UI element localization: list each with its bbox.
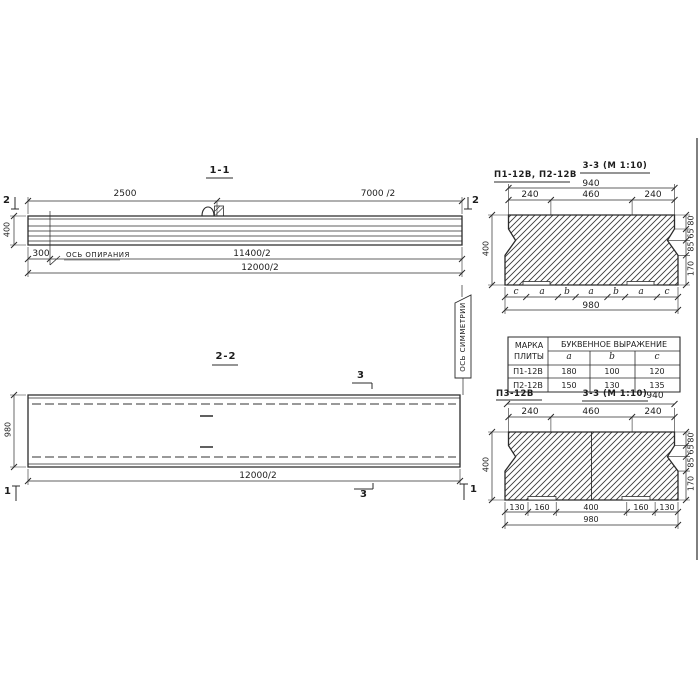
xsec-bot-dim-130b: 130 [652, 503, 682, 512]
letter-c1: c [508, 287, 524, 297]
cut-marker-3-bottom: 3 [360, 490, 368, 500]
section-1-1-title: 1-1 [203, 166, 237, 176]
xsec-top-dim-400: 400 [482, 234, 491, 264]
xsec-top-dim-240a: 240 [510, 190, 550, 200]
table-col-b: b [602, 352, 622, 362]
xsec-top-dim-460: 460 [571, 190, 611, 200]
dim-400-elevation: 400 [3, 215, 12, 245]
xsec-bot-dim-980: 980 [571, 515, 611, 524]
dim-980-plan: 980 [4, 415, 13, 445]
letter-b2: b [608, 287, 624, 297]
dim-7000-2: 7000 /2 [348, 189, 408, 199]
section-2-2-lines [10, 285, 471, 501]
xsec-top-title: 3-3 (М 1:10) [570, 161, 660, 171]
dim-11400-2: 11400/2 [222, 249, 282, 259]
table-header-group: БУКВЕННОЕ ВЫРАЖЕНИЕ [549, 340, 679, 349]
letter-b1: b [559, 287, 575, 297]
drawing-sheet: 1-1 2500 7000 /2 2 2 400 300 ОСЬ ОПИРАНИ… [0, 0, 700, 700]
table-col-c: c [647, 352, 667, 362]
table-col-a: a [559, 352, 579, 362]
xsec-top-mark-label: П1-12В, П2-12В [494, 170, 577, 180]
xsec-bot-mark-label: П3-12В [496, 389, 534, 399]
table-r1-a: 180 [549, 367, 589, 376]
xsec-bot-dim-240b: 240 [633, 407, 673, 417]
xsec-top-dim-980: 980 [571, 301, 611, 311]
cut-marker-3-top: 3 [357, 371, 365, 381]
xsec-bot-dim-940: 940 [640, 391, 670, 401]
dim-300: 300 [28, 249, 54, 259]
letter-a1: a [534, 287, 550, 297]
xsec-bot-dim-240a: 240 [510, 407, 550, 417]
letter-a2: a [583, 287, 599, 297]
section-2-2-title: 2-2 [209, 352, 243, 362]
xsec-top-dim-240b: 240 [633, 190, 673, 200]
xsec-bot-dim-400: 400 [482, 450, 491, 480]
dim-12000-2-plan: 12000/2 [228, 471, 288, 481]
letter-c2: c [659, 287, 675, 297]
table-r1-mark: П1-12В [508, 367, 548, 376]
cut-marker-2-left: 2 [3, 196, 11, 206]
dim-12000-2-elevation: 12000/2 [230, 263, 290, 273]
xsec-bot-dim-170: 170 [687, 469, 696, 499]
table-r1-b: 100 [592, 367, 632, 376]
xsec-bot-dim-460: 460 [571, 407, 611, 417]
symmetry-axis-label: ОСЬ СИММЕТРИИ [459, 294, 467, 380]
table-r1-c: 120 [637, 367, 677, 376]
table-header-mark: МАРКА ПЛИТЫ [511, 340, 547, 362]
xsec-top-dim-170: 170 [687, 254, 696, 284]
xsec-top-dim-940: 940 [571, 179, 611, 189]
letter-a3: a [633, 287, 649, 297]
xsec-bot-dim-160a: 160 [527, 503, 557, 512]
xsec-bot-dim-400b: 400 [576, 503, 606, 512]
support-axis-label: ОСЬ ОПИРАНИЯ [66, 251, 130, 259]
dim-2500: 2500 [100, 189, 150, 199]
drawing-linework [0, 0, 700, 700]
cut-marker-2-right: 2 [472, 196, 480, 206]
cut-marker-1-right: 1 [470, 485, 478, 495]
cut-marker-1-left: 1 [4, 487, 12, 497]
